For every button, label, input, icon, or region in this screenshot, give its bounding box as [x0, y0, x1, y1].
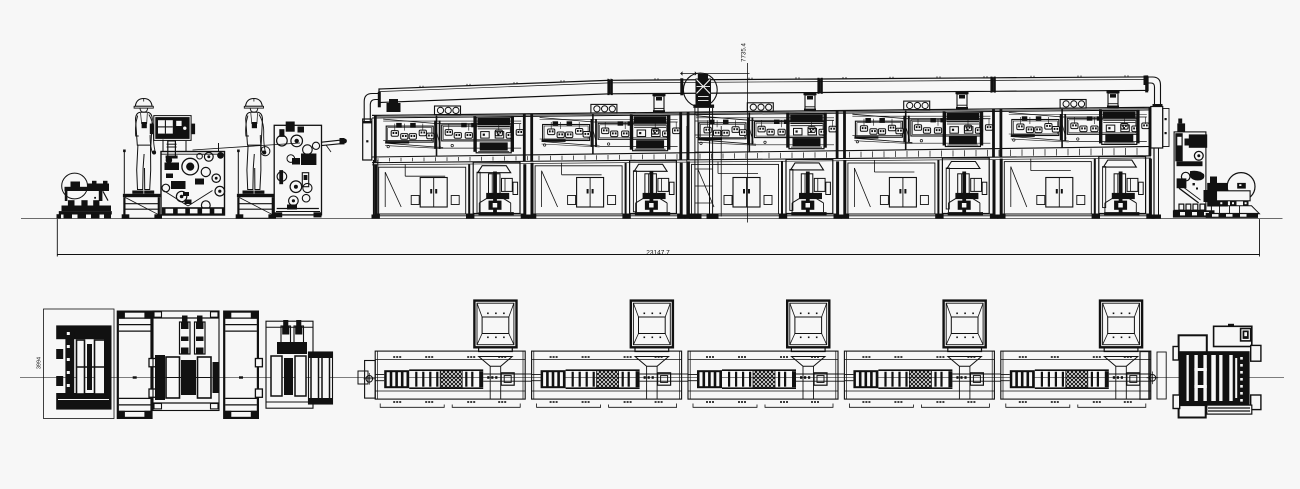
svg-text:7735.4: 7735.4	[741, 43, 748, 62]
svg-text:3994: 3994	[37, 357, 43, 369]
svg-text:23147.7: 23147.7	[646, 249, 670, 256]
